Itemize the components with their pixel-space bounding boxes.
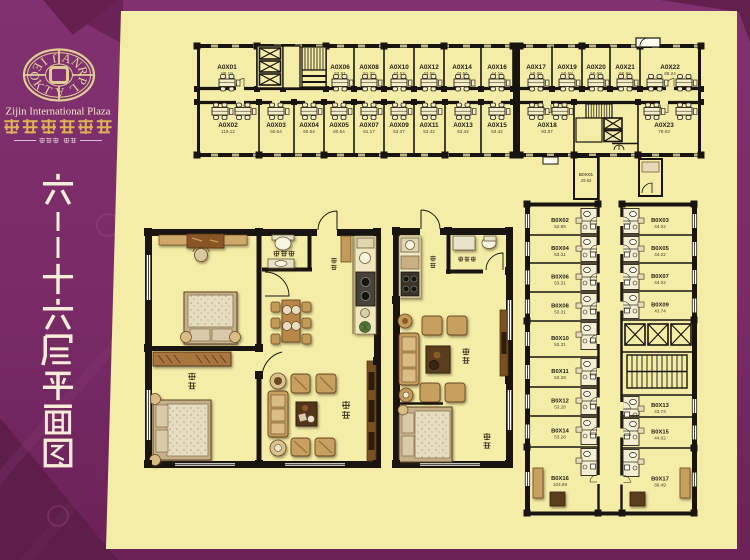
svg-text:53.28: 53.28 [554, 434, 566, 439]
svg-text:78.03: 78.03 [658, 129, 670, 134]
svg-text:43.74: 43.74 [654, 308, 666, 313]
svg-text:60.54: 60.54 [270, 129, 282, 134]
svg-text:53.31: 53.31 [554, 252, 566, 257]
svg-text:53.31: 53.31 [554, 280, 566, 285]
svg-text:60.54: 60.54 [303, 129, 315, 134]
svg-text:53.31: 53.31 [554, 342, 566, 347]
svg-text:53.42: 53.42 [423, 129, 435, 134]
svg-text:44.02: 44.02 [654, 252, 666, 257]
svg-text:68.24: 68.24 [664, 71, 676, 76]
svg-text:53.37: 53.37 [393, 129, 405, 134]
svg-text:86.49: 86.49 [654, 482, 666, 487]
svg-text:A: A [55, 85, 65, 99]
svg-text:44.02: 44.02 [654, 435, 666, 440]
svg-text:53.28: 53.28 [554, 404, 566, 409]
svg-text:53.31: 53.31 [554, 309, 566, 314]
svg-text:Zijin International Plaza: Zijin International Plaza [6, 106, 111, 118]
svg-text:44.02: 44.02 [654, 224, 666, 229]
svg-text:119.12: 119.12 [221, 129, 235, 134]
svg-text:29.93: 29.93 [581, 178, 592, 183]
svg-text:43.74: 43.74 [654, 409, 666, 414]
svg-text:44.02: 44.02 [654, 280, 666, 285]
svg-text:104.69: 104.69 [553, 482, 567, 487]
svg-text:93.87: 93.87 [541, 129, 553, 134]
svg-text:60.54: 60.54 [333, 129, 345, 134]
svg-text:53.28: 53.28 [554, 375, 566, 380]
svg-text:52.85: 52.85 [554, 224, 566, 229]
svg-text:O: O [27, 71, 41, 81]
svg-text:53.42: 53.42 [491, 129, 503, 134]
svg-text:61.17: 61.17 [363, 129, 375, 134]
svg-text:53.42: 53.42 [457, 129, 469, 134]
